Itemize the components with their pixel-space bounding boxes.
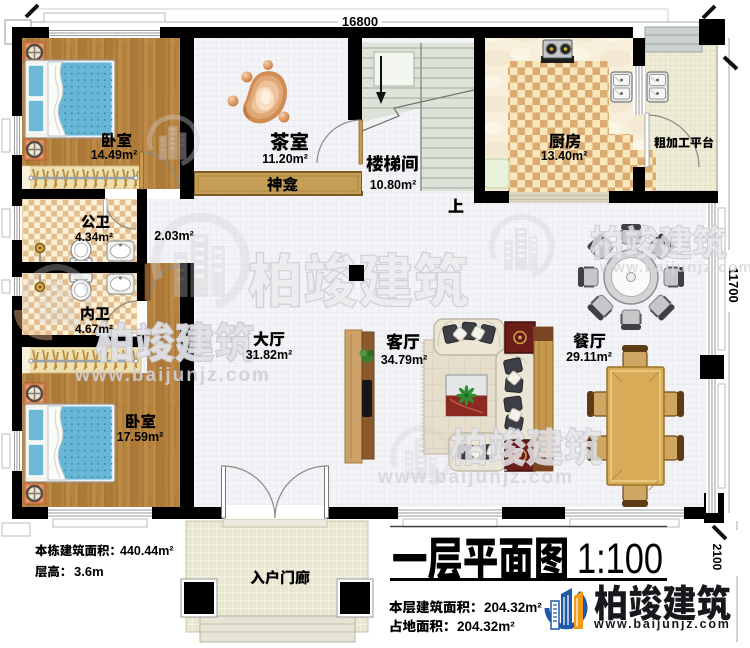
svg-text:2.03m²: 2.03m²: [154, 229, 194, 243]
svg-text:17.59m²: 17.59m²: [117, 430, 164, 444]
svg-text:www.baijunjz.com: www.baijunjz.com: [599, 259, 750, 276]
svg-text:11.20m²: 11.20m²: [262, 152, 308, 166]
svg-text:www.baijunjz.com: www.baijunjz.com: [593, 617, 731, 631]
svg-text:1:100: 1:100: [577, 535, 663, 582]
svg-text:3.6m: 3.6m: [74, 564, 104, 579]
svg-text:204.32m²: 204.32m²: [484, 600, 542, 615]
svg-text:14.49m²: 14.49m²: [91, 148, 138, 162]
svg-text:2100: 2100: [710, 544, 724, 571]
svg-text:www.baijunjz.com: www.baijunjz.com: [74, 365, 271, 386]
svg-text:440.44m²: 440.44m²: [120, 544, 174, 558]
svg-text:www.baijunjz.com: www.baijunjz.com: [377, 467, 574, 488]
svg-text:204.32m²: 204.32m²: [457, 619, 515, 634]
svg-text:16800: 16800: [342, 14, 378, 29]
svg-text:10.80m²: 10.80m²: [370, 178, 417, 192]
svg-text:29.11m²: 29.11m²: [566, 350, 612, 364]
svg-text:13.40m²: 13.40m²: [541, 149, 588, 163]
svg-text:31.82m²: 31.82m²: [246, 348, 293, 362]
svg-text:4.67m²: 4.67m²: [75, 322, 113, 336]
svg-text:4.34m²: 4.34m²: [75, 230, 113, 244]
svg-text:34.79m²: 34.79m²: [381, 353, 428, 367]
